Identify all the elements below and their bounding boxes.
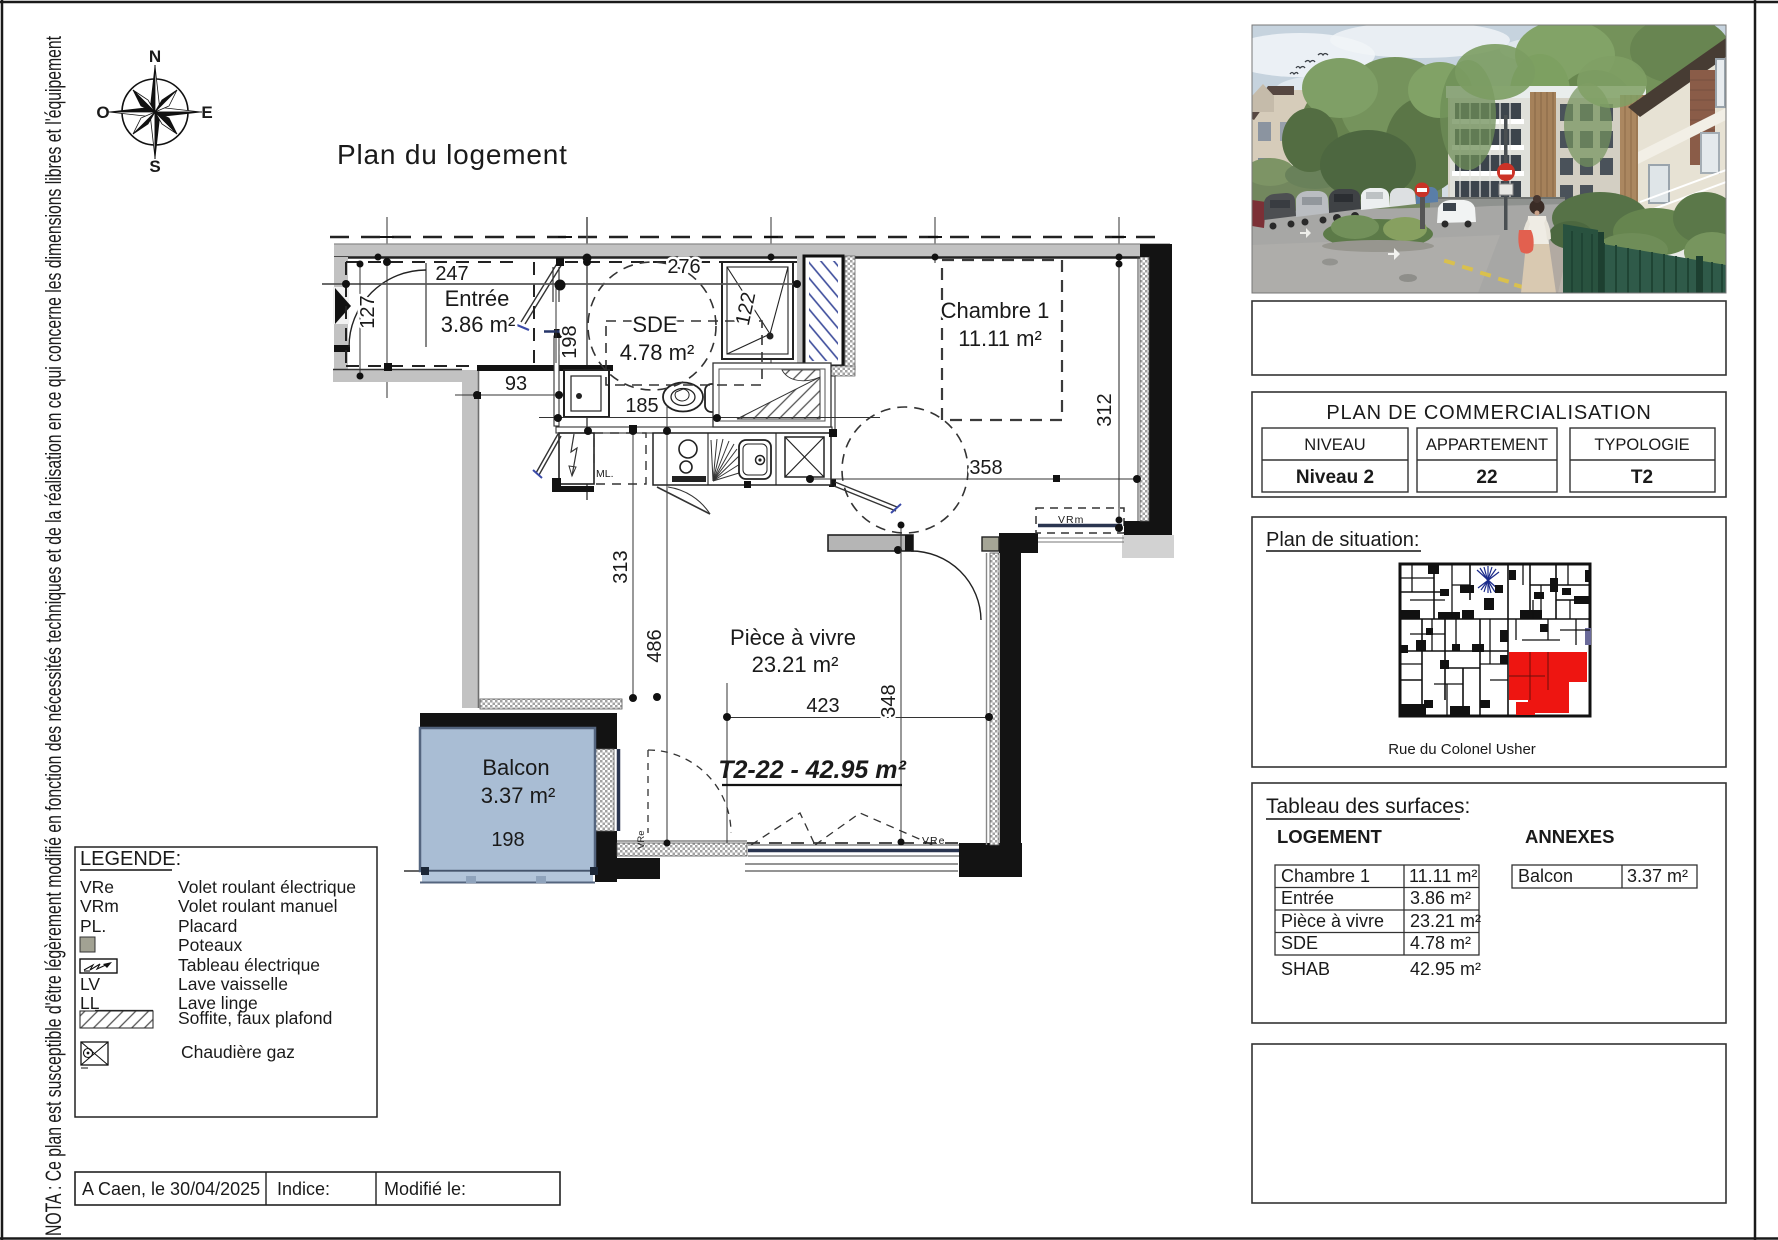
svg-text:198: 198	[559, 325, 581, 358]
svg-text:23.21 m²: 23.21 m²	[752, 652, 839, 677]
svg-text:E: E	[201, 103, 212, 122]
svg-text:3.86 m²: 3.86 m²	[441, 312, 516, 337]
svg-text:TYPOLOGIE: TYPOLOGIE	[1594, 436, 1689, 454]
svg-text:Entrée: Entrée	[1281, 888, 1334, 908]
svg-text:3.86 m²: 3.86 m²	[1410, 888, 1471, 908]
svg-text:S: S	[149, 157, 160, 176]
svg-text:Poteaux: Poteaux	[178, 935, 242, 955]
svg-text:4.78 m²: 4.78 m²	[620, 340, 695, 365]
svg-text:127: 127	[357, 295, 379, 328]
svg-text:Plan du logement: Plan du logement	[337, 139, 568, 170]
svg-text:Chaudière gaz: Chaudière gaz	[181, 1042, 295, 1062]
svg-text:Balcon: Balcon	[1518, 866, 1573, 886]
svg-text:Rue du Colonel Usher: Rue du Colonel Usher	[1388, 741, 1536, 758]
svg-text:APPARTEMENT: APPARTEMENT	[1426, 436, 1548, 454]
svg-text:Soffite, faux plafond: Soffite, faux plafond	[178, 1008, 332, 1028]
svg-text:Pièce à vivre: Pièce à vivre	[1281, 911, 1384, 931]
svg-text:N: N	[149, 47, 161, 66]
svg-text:486: 486	[644, 629, 666, 662]
svg-text:4.78 m²: 4.78 m²	[1410, 933, 1471, 953]
svg-text:SDE: SDE	[1281, 933, 1318, 953]
svg-text:Chambre 1: Chambre 1	[1281, 866, 1370, 886]
svg-text:198: 198	[491, 829, 524, 851]
svg-text:VRe: VRe	[80, 877, 114, 897]
svg-text:247: 247	[435, 263, 468, 285]
svg-text:O: O	[96, 103, 109, 122]
svg-text:11.11 m²: 11.11 m²	[958, 326, 1042, 351]
svg-text:22: 22	[1476, 467, 1497, 488]
svg-text:423: 423	[806, 695, 839, 717]
svg-text:312: 312	[1094, 393, 1116, 426]
svg-text:93: 93	[505, 373, 527, 395]
svg-text:348: 348	[878, 684, 900, 717]
svg-text:LOGEMENT: LOGEMENT	[1277, 826, 1383, 847]
svg-text:PLAN DE COMMERCIALISATION: PLAN DE COMMERCIALISATION	[1326, 402, 1651, 424]
svg-text:Tableau des surfaces:: Tableau des surfaces:	[1266, 795, 1470, 818]
svg-text:LV: LV	[80, 974, 100, 994]
svg-text:Volet roulant manuel: Volet roulant manuel	[178, 896, 338, 916]
svg-text:Volet roulant électrique: Volet roulant électrique	[178, 877, 356, 897]
svg-text:T2: T2	[1631, 467, 1653, 488]
svg-text:ANNEXES: ANNEXES	[1525, 826, 1614, 847]
svg-text:PL.: PL.	[80, 916, 106, 936]
svg-text:LEGENDE:: LEGENDE:	[80, 848, 181, 870]
svg-text:T2-22 - 42.95 m²: T2-22 - 42.95 m²	[718, 756, 906, 784]
svg-text:Plan de situation:: Plan de situation:	[1266, 529, 1419, 551]
svg-text:Niveau 2: Niveau 2	[1296, 467, 1374, 488]
svg-text:VRm: VRm	[80, 896, 119, 916]
svg-text:358: 358	[969, 457, 1002, 479]
svg-text:VRe: VRe	[636, 831, 647, 849]
svg-text:Entrée: Entrée	[445, 286, 510, 311]
svg-text:Tableau électrique: Tableau électrique	[178, 955, 320, 975]
svg-text:185: 185	[625, 395, 658, 417]
svg-text:Indice:: Indice:	[277, 1179, 330, 1199]
svg-text:ML.: ML.	[596, 468, 614, 480]
svg-text:23.21 m²: 23.21 m²	[1410, 911, 1481, 931]
svg-text:Balcon: Balcon	[482, 755, 549, 780]
svg-text:VRe: VRe	[922, 835, 945, 847]
svg-text:Chambre 1: Chambre 1	[941, 298, 1050, 323]
svg-text:SHAB: SHAB	[1281, 959, 1330, 979]
svg-text:SDE: SDE	[632, 312, 677, 337]
svg-text:VRm: VRm	[1058, 514, 1084, 526]
svg-text:A Caen, le 30/04/2025: A Caen, le 30/04/2025	[82, 1179, 260, 1199]
svg-text:3.37 m²: 3.37 m²	[481, 783, 556, 808]
svg-text:NOTA : Ce plan est susceptible: NOTA : Ce plan est susceptible d'être lé…	[41, 35, 66, 1236]
svg-text:Pièce à vivre: Pièce à vivre	[730, 625, 856, 650]
svg-text:Lave vaisselle: Lave vaisselle	[178, 974, 288, 994]
svg-text:3.37 m²: 3.37 m²	[1627, 866, 1688, 886]
svg-text:11.11 m²: 11.11 m²	[1409, 866, 1477, 886]
svg-text:276: 276	[667, 256, 700, 278]
svg-text:Placard: Placard	[178, 916, 237, 936]
svg-text:313: 313	[610, 550, 632, 583]
svg-text:NIVEAU: NIVEAU	[1304, 436, 1365, 454]
svg-text:Modifié le:: Modifié le:	[384, 1179, 466, 1199]
svg-text:42.95 m²: 42.95 m²	[1410, 959, 1481, 979]
